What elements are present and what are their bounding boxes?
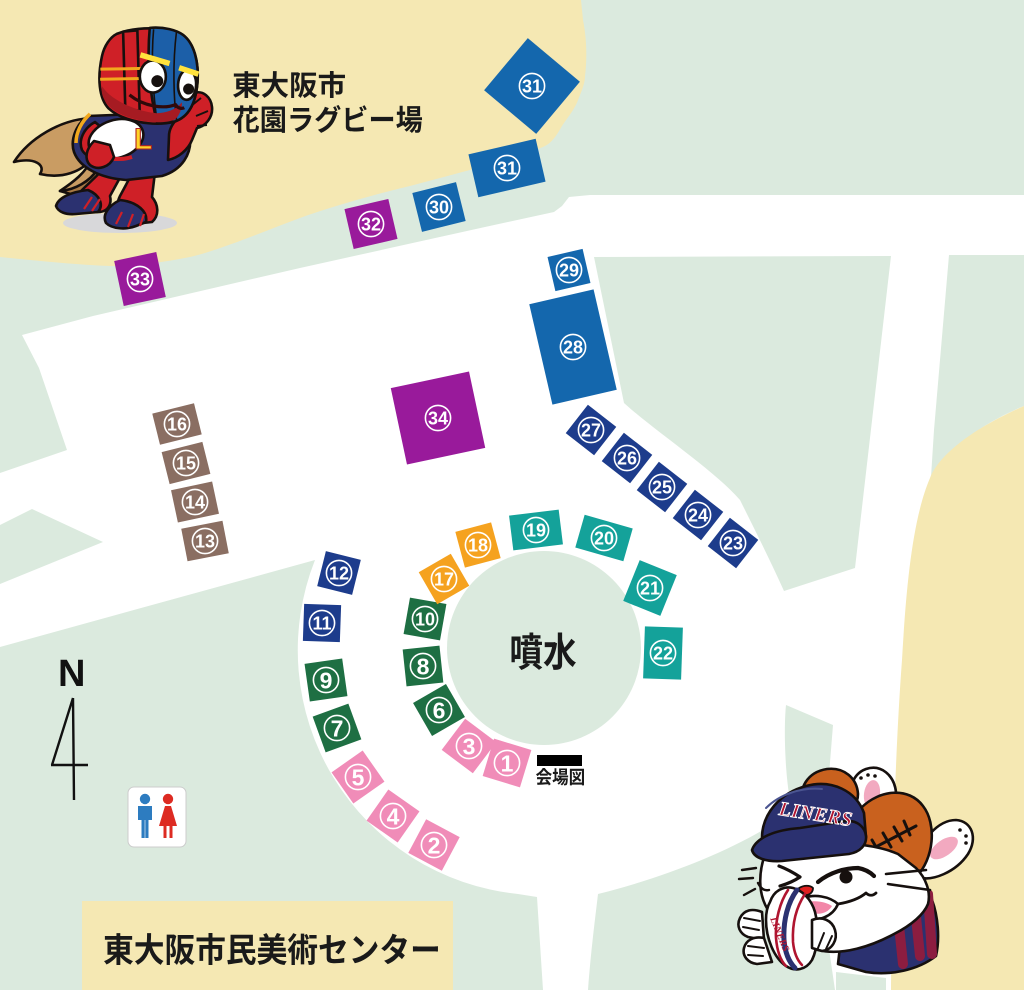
svg-text:11: 11 xyxy=(312,614,331,634)
svg-text:23: 23 xyxy=(723,534,743,554)
svg-text:5: 5 xyxy=(352,765,365,791)
svg-text:13: 13 xyxy=(195,532,215,552)
svg-text:12: 12 xyxy=(329,564,349,584)
svg-text:1: 1 xyxy=(501,751,514,777)
svg-text:19: 19 xyxy=(526,521,546,541)
svg-text:29: 29 xyxy=(559,261,579,281)
svg-text:16: 16 xyxy=(167,415,187,435)
svg-text:20: 20 xyxy=(594,529,614,549)
svg-text:18: 18 xyxy=(468,536,488,556)
svg-text:22: 22 xyxy=(653,644,673,664)
svg-text:14: 14 xyxy=(185,493,205,513)
svg-text:3: 3 xyxy=(463,734,476,760)
svg-text:31: 31 xyxy=(522,77,542,97)
svg-text:L: L xyxy=(134,123,152,156)
svg-text:34: 34 xyxy=(428,409,448,429)
svg-text:9: 9 xyxy=(320,668,333,694)
svg-text:27: 27 xyxy=(581,421,601,441)
svg-text:4: 4 xyxy=(387,804,400,830)
svg-text:N: N xyxy=(58,653,85,695)
svg-text:10: 10 xyxy=(415,610,435,630)
svg-text:21: 21 xyxy=(640,579,660,599)
svg-text:24: 24 xyxy=(688,506,708,526)
svg-text:33: 33 xyxy=(130,270,150,290)
svg-text:26: 26 xyxy=(617,449,637,469)
svg-text:15: 15 xyxy=(176,454,196,474)
svg-text:31: 31 xyxy=(497,159,517,179)
svg-text:8: 8 xyxy=(417,654,430,680)
svg-text:28: 28 xyxy=(563,338,583,358)
svg-text:32: 32 xyxy=(361,215,381,235)
svg-text:7: 7 xyxy=(331,716,344,742)
svg-text:25: 25 xyxy=(652,478,672,498)
svg-text:30: 30 xyxy=(429,198,449,218)
svg-text:17: 17 xyxy=(434,570,454,590)
svg-text:6: 6 xyxy=(433,698,446,724)
svg-text:2: 2 xyxy=(428,833,441,859)
